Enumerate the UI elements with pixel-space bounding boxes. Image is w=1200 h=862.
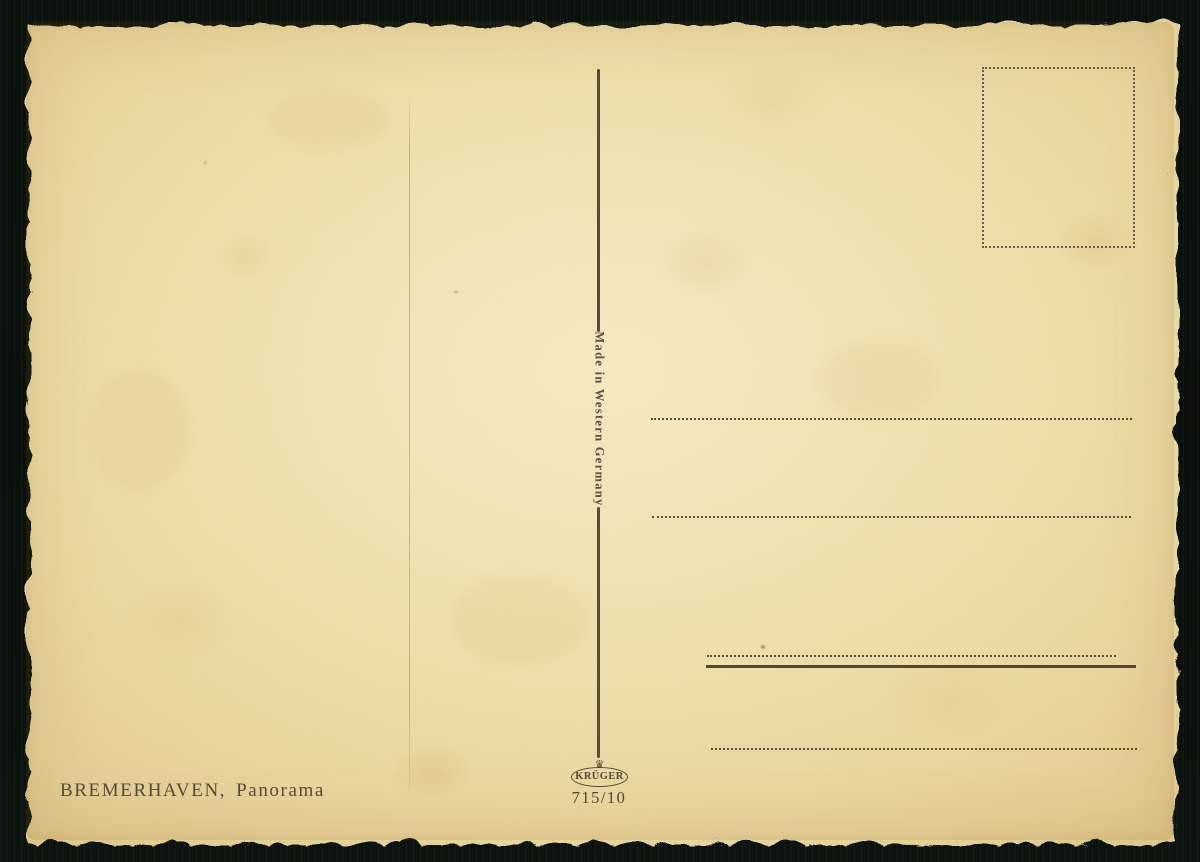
address-line-3: [707, 655, 1116, 657]
publisher-name: KRÜGER: [575, 772, 624, 783]
caption-city: BREMERHAVEN,: [60, 780, 226, 801]
publisher-series-number: 715/10: [559, 788, 639, 808]
scan-background: Made in Western Germany BREMERHAVEN,Pano…: [0, 0, 1200, 862]
stamp-box: [982, 67, 1135, 248]
caption-subject: Panorama: [236, 780, 325, 801]
address-line-4: [711, 748, 1137, 750]
address-line-1: [651, 418, 1132, 420]
made-in-text: Made in Western Germany: [592, 331, 607, 506]
publisher-logo: ♛ KRÜGER: [571, 767, 628, 787]
crease-line: [409, 92, 410, 814]
divider-line-bottom: [597, 507, 600, 758]
address-line-2: [652, 516, 1131, 518]
divider-line-top: [597, 69, 600, 332]
crown-icon: ♛: [595, 759, 605, 770]
caption: BREMERHAVEN,Panorama: [60, 780, 325, 802]
address-underline: [706, 665, 1136, 668]
